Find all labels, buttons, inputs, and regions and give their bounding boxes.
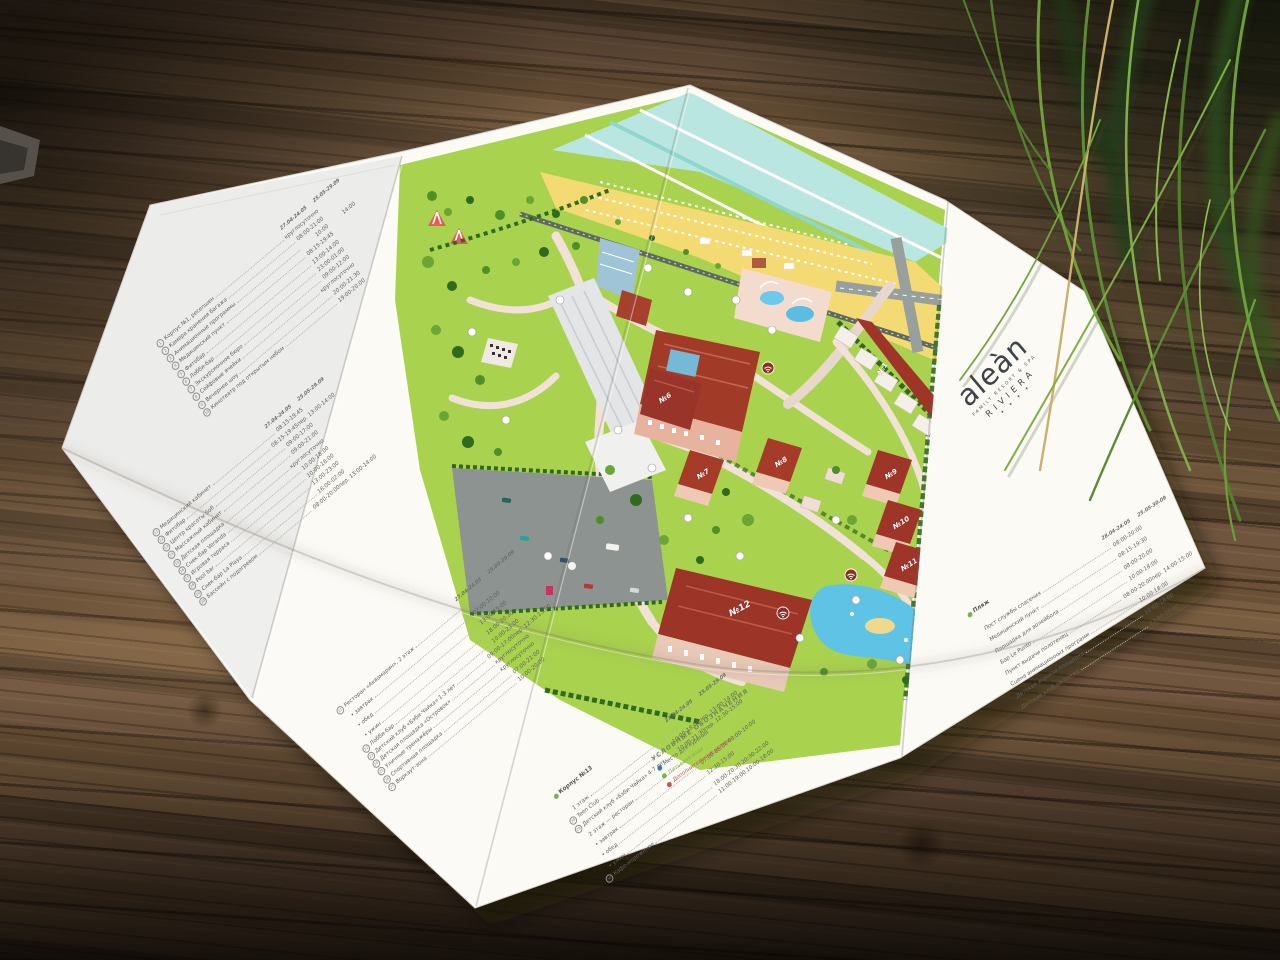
grass-plant — [0, 0, 1280, 960]
photo-scene: 27.04-24.0525.05-29.09 1 Корпус №1, ресе… — [0, 0, 1280, 960]
